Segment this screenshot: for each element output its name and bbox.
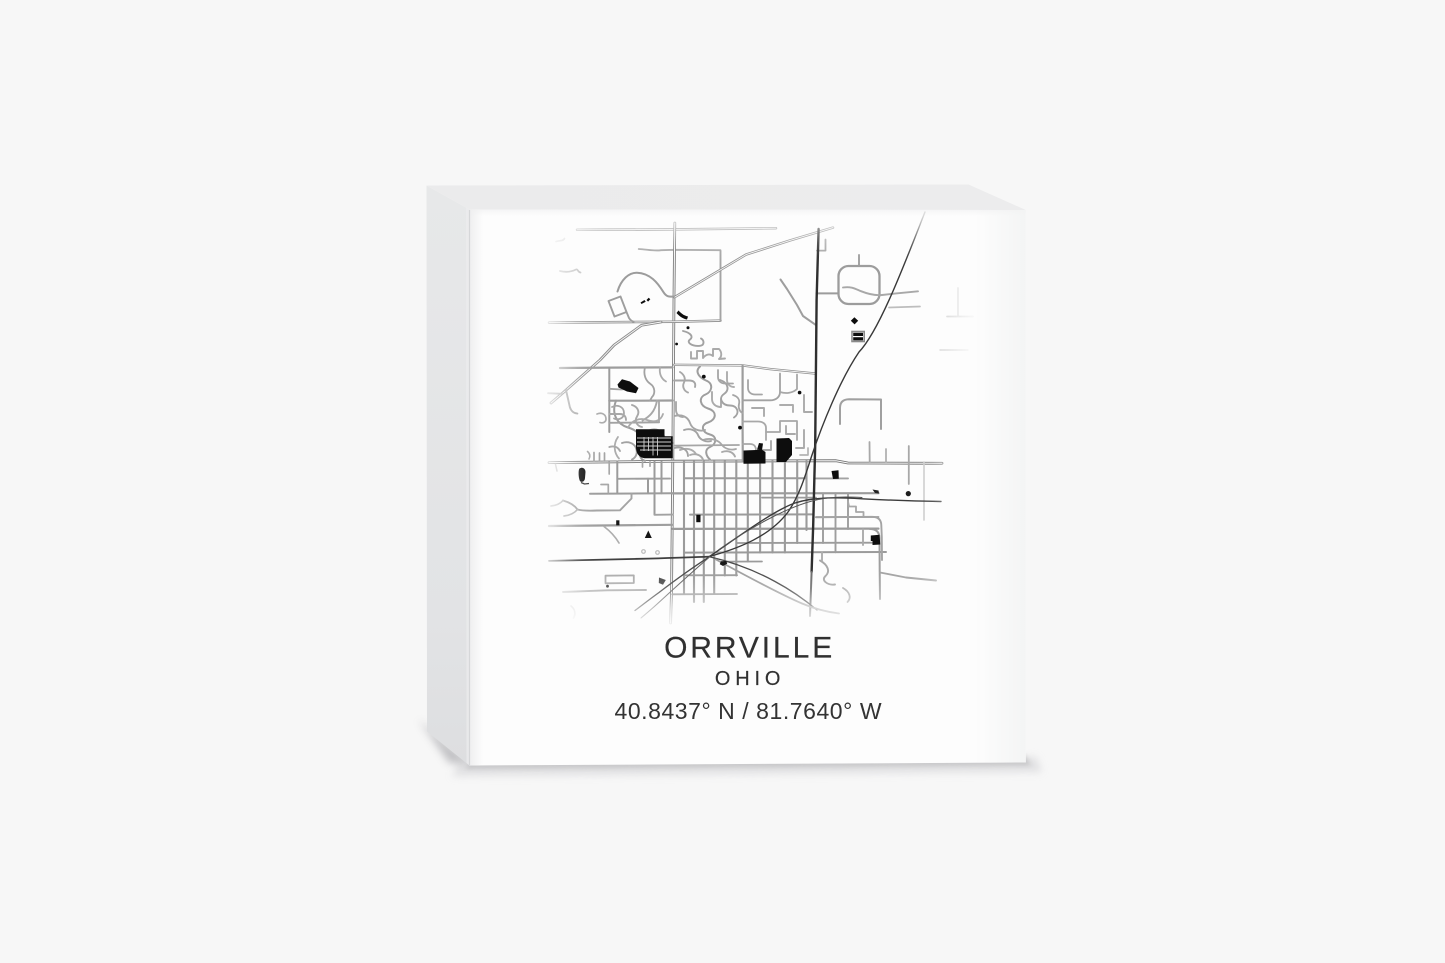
svg-text:40.8437° N / 81.7640° W: 40.8437° N / 81.7640° W: [615, 698, 883, 724]
svg-text:ORRVILLE: ORRVILLE: [664, 632, 835, 665]
svg-text:OHIO: OHIO: [715, 668, 785, 690]
